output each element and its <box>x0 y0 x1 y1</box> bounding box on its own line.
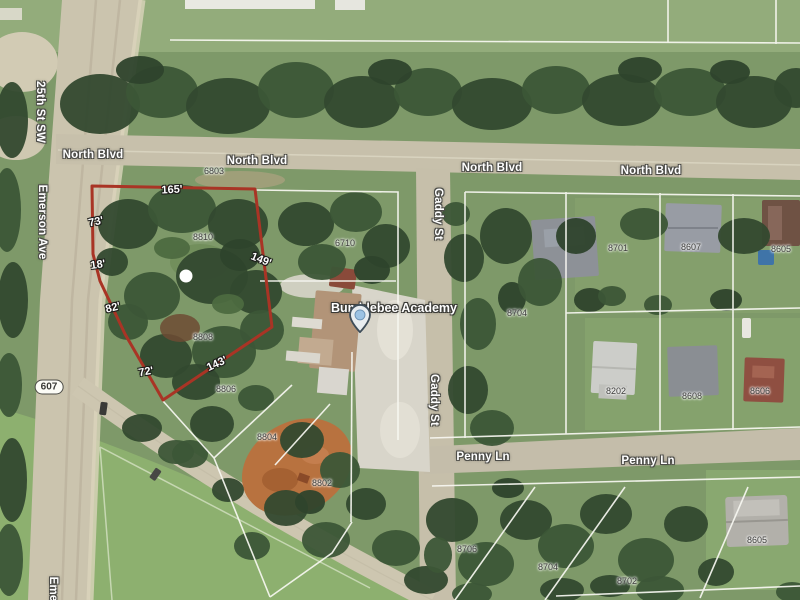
route-607-shield: 607 <box>35 380 64 395</box>
house-8605 <box>725 495 789 547</box>
route-shield-number: 607 <box>41 382 58 393</box>
house-8608 <box>667 345 719 397</box>
location-pin-icon[interactable] <box>349 304 371 338</box>
house-8606 <box>743 357 785 402</box>
house-8202 <box>590 341 637 400</box>
satellite-terrain <box>0 0 800 600</box>
satellite-map[interactable]: North BlvdNorth BlvdNorth BlvdNorth Blvd… <box>0 0 800 600</box>
parcel-center-dot <box>180 270 193 283</box>
